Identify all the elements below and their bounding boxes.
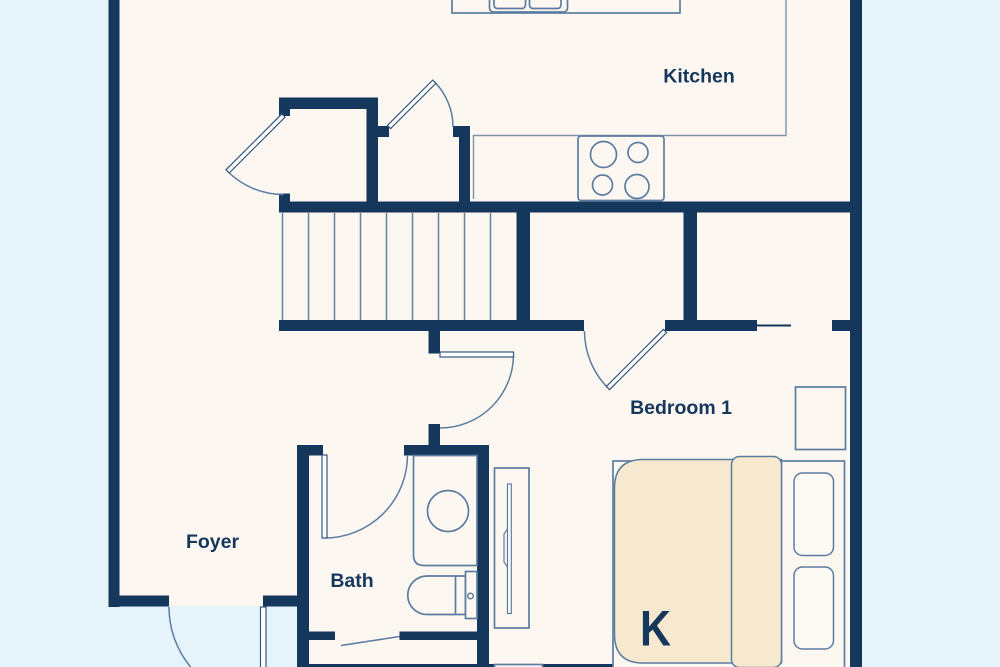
- svg-text:Kitchen: Kitchen: [663, 66, 735, 88]
- svg-text:K: K: [640, 601, 671, 657]
- svg-text:Bath: Bath: [330, 570, 373, 592]
- svg-text:Foyer: Foyer: [186, 531, 240, 553]
- svg-text:Bedroom 1: Bedroom 1: [630, 397, 732, 419]
